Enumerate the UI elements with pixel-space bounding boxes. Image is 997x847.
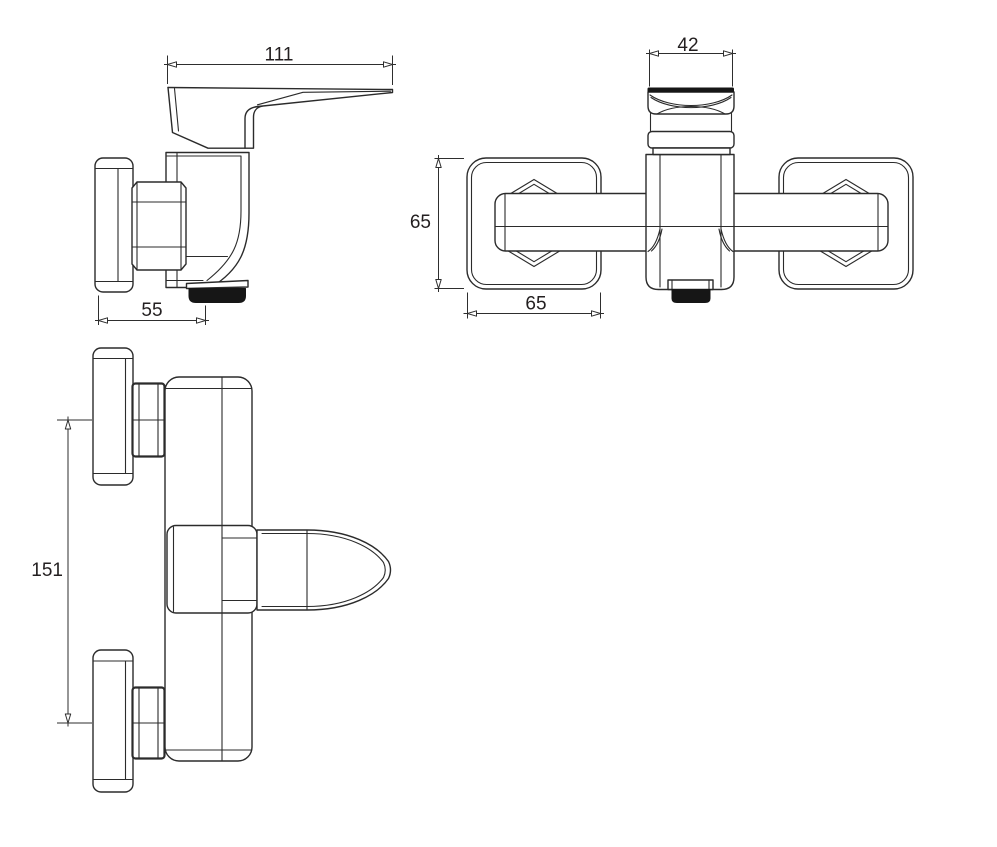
front-handle-top-edge — [648, 88, 734, 92]
front-outlet-collar — [668, 280, 713, 290]
side-lever-handle-detail — [175, 89, 391, 132]
dimension-escutcheon-height: 65 — [410, 155, 464, 292]
front-handle-neck — [653, 148, 730, 155]
top-handle-lever — [257, 530, 391, 610]
side-lever-handle — [168, 88, 393, 149]
front-handle-collar — [648, 132, 734, 149]
dim-111-label: 111 — [265, 45, 294, 66]
front-view: 42 65 65 — [410, 35, 913, 319]
top-lower-wall-flange — [93, 650, 133, 792]
side-outlet-black — [189, 289, 246, 303]
dimension-connection-spacing: 151 — [31, 417, 92, 727]
top-upper-wall-flange — [93, 348, 133, 485]
top-handle-base — [167, 526, 257, 614]
side-wall-flange — [95, 158, 133, 292]
side-lever-handle-cap — [168, 88, 262, 149]
dim-65h-label: 65 — [525, 294, 546, 315]
front-outlet-black — [672, 290, 710, 303]
side-hex-nut — [132, 182, 186, 270]
dim-65v-label: 65 — [410, 212, 431, 233]
top-view: 151 — [31, 348, 390, 792]
dim-55-label: 55 — [141, 300, 162, 321]
drawing-page: 111 55 — [0, 0, 997, 847]
dimension-escutcheon-width: 65 — [464, 293, 605, 319]
front-handle-sides — [651, 114, 732, 132]
technical-drawing: 111 55 — [0, 0, 997, 847]
dim-42-label: 42 — [677, 35, 698, 56]
dimension-overall-length: 111 — [164, 45, 396, 86]
dim-65v-lines — [435, 155, 465, 292]
dim-151-label: 151 — [31, 560, 63, 581]
side-view: 111 55 — [95, 45, 396, 326]
dimension-handle-width: 42 — [646, 35, 736, 87]
